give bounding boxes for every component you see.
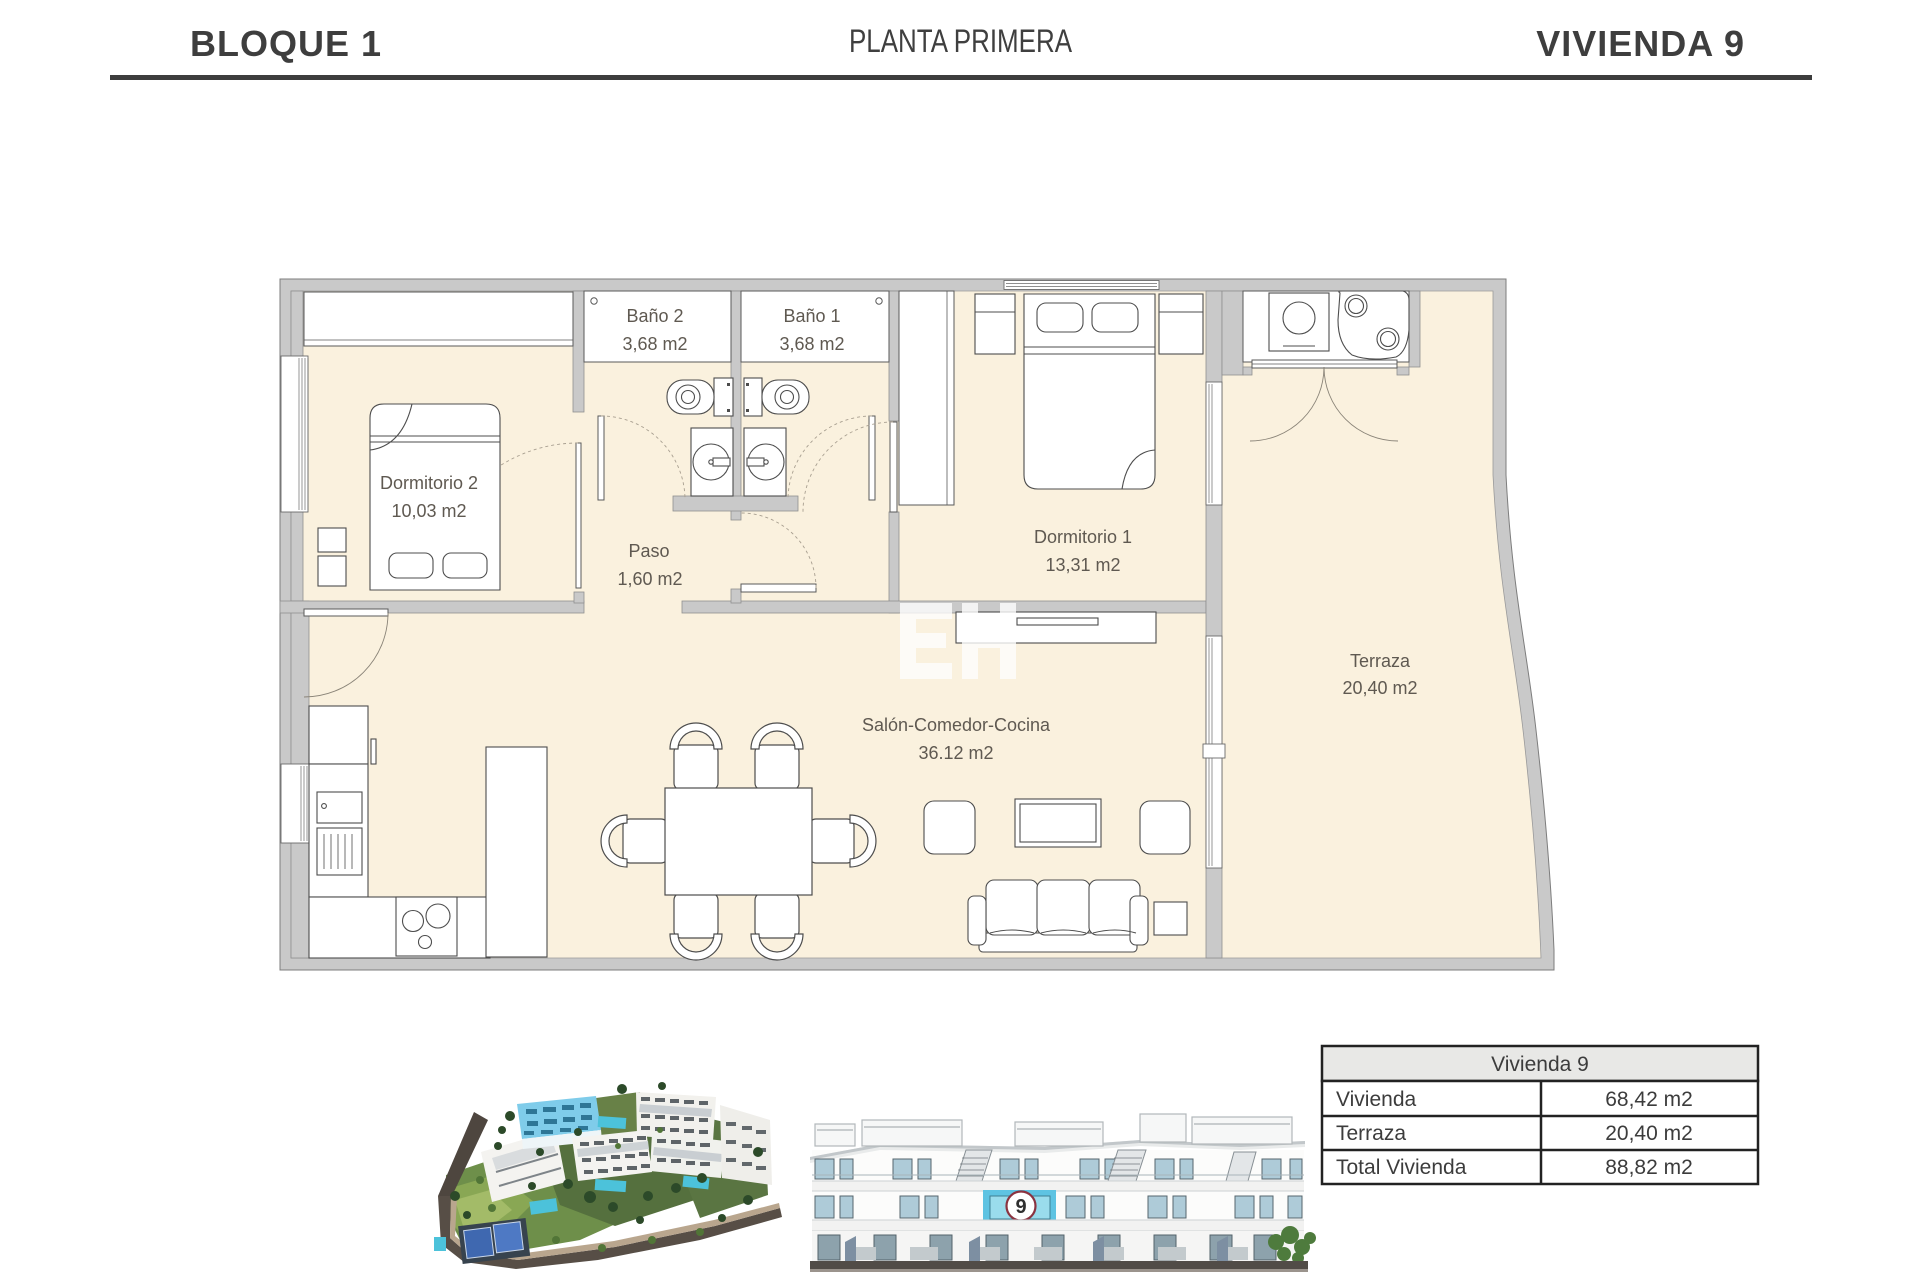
svg-text:9: 9 xyxy=(1015,1196,1026,1218)
svg-text:1,60 m2: 1,60 m2 xyxy=(617,569,682,589)
svg-text:68,42 m2: 68,42 m2 xyxy=(1605,1088,1693,1111)
svg-text:Salón-Comedor-Cocina: Salón-Comedor-Cocina xyxy=(862,715,1051,735)
svg-text:10,03 m2: 10,03 m2 xyxy=(391,501,466,521)
svg-text:20,40 m2: 20,40 m2 xyxy=(1605,1122,1693,1145)
svg-text:13,31 m2: 13,31 m2 xyxy=(1045,555,1120,575)
svg-text:Paso: Paso xyxy=(628,541,669,561)
svg-text:Terraza: Terraza xyxy=(1350,651,1411,671)
svg-text:88,82 m2: 88,82 m2 xyxy=(1605,1156,1693,1179)
svg-text:3,68 m2: 3,68 m2 xyxy=(779,334,844,354)
svg-text:Vivienda: Vivienda xyxy=(1336,1088,1416,1111)
svg-text:3,68 m2: 3,68 m2 xyxy=(622,334,687,354)
svg-text:Dormitorio 1: Dormitorio 1 xyxy=(1034,527,1132,547)
svg-text:Terraza: Terraza xyxy=(1336,1122,1406,1145)
svg-text:20,40 m2: 20,40 m2 xyxy=(1342,678,1417,698)
svg-text:BLOQUE 1: BLOQUE 1 xyxy=(190,23,382,64)
svg-text:VIVIENDA 9: VIVIENDA 9 xyxy=(1536,23,1745,64)
svg-text:Dormitorio 2: Dormitorio 2 xyxy=(380,473,478,493)
svg-text:Baño 1: Baño 1 xyxy=(783,306,840,326)
svg-text:36.12 m2: 36.12 m2 xyxy=(918,743,993,763)
svg-text:Vivienda 9: Vivienda 9 xyxy=(1491,1053,1589,1076)
svg-text:Baño 2: Baño 2 xyxy=(626,306,683,326)
svg-text:PLANTA PRIMERA: PLANTA PRIMERA xyxy=(849,23,1073,59)
svg-text:Total Vivienda: Total Vivienda xyxy=(1336,1156,1467,1179)
